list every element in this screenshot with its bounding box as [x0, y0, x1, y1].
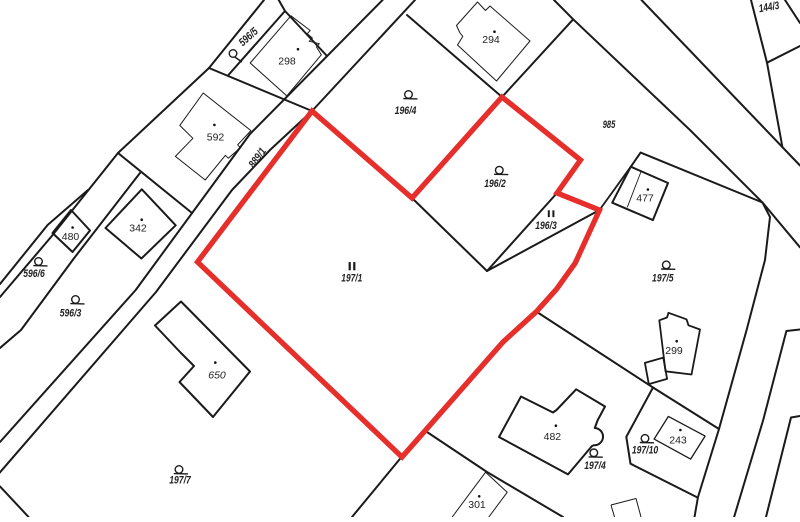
svg-text:196/4: 196/4	[395, 105, 417, 117]
svg-text:342: 342	[129, 223, 147, 235]
svg-text:477: 477	[636, 192, 654, 204]
svg-text:596/6: 596/6	[23, 268, 45, 280]
svg-text:294: 294	[482, 34, 500, 46]
svg-text:197/10: 197/10	[632, 445, 659, 457]
svg-text:196/3: 196/3	[535, 220, 557, 232]
svg-text:197/1: 197/1	[341, 273, 362, 285]
svg-text:985: 985	[603, 119, 616, 131]
svg-text:196/2: 196/2	[484, 178, 506, 190]
svg-text:299: 299	[665, 345, 683, 357]
svg-text:301: 301	[468, 499, 486, 511]
svg-text:197/4: 197/4	[584, 460, 606, 472]
svg-text:197/5: 197/5	[652, 273, 674, 285]
svg-text:596/3: 596/3	[60, 308, 82, 320]
svg-text:482: 482	[544, 431, 562, 443]
svg-text:480: 480	[62, 231, 80, 243]
svg-text:592: 592	[207, 131, 225, 143]
svg-text:298: 298	[278, 56, 296, 68]
svg-text:650: 650	[208, 370, 226, 382]
svg-text:243: 243	[669, 435, 687, 447]
svg-text:197/7: 197/7	[169, 475, 191, 487]
